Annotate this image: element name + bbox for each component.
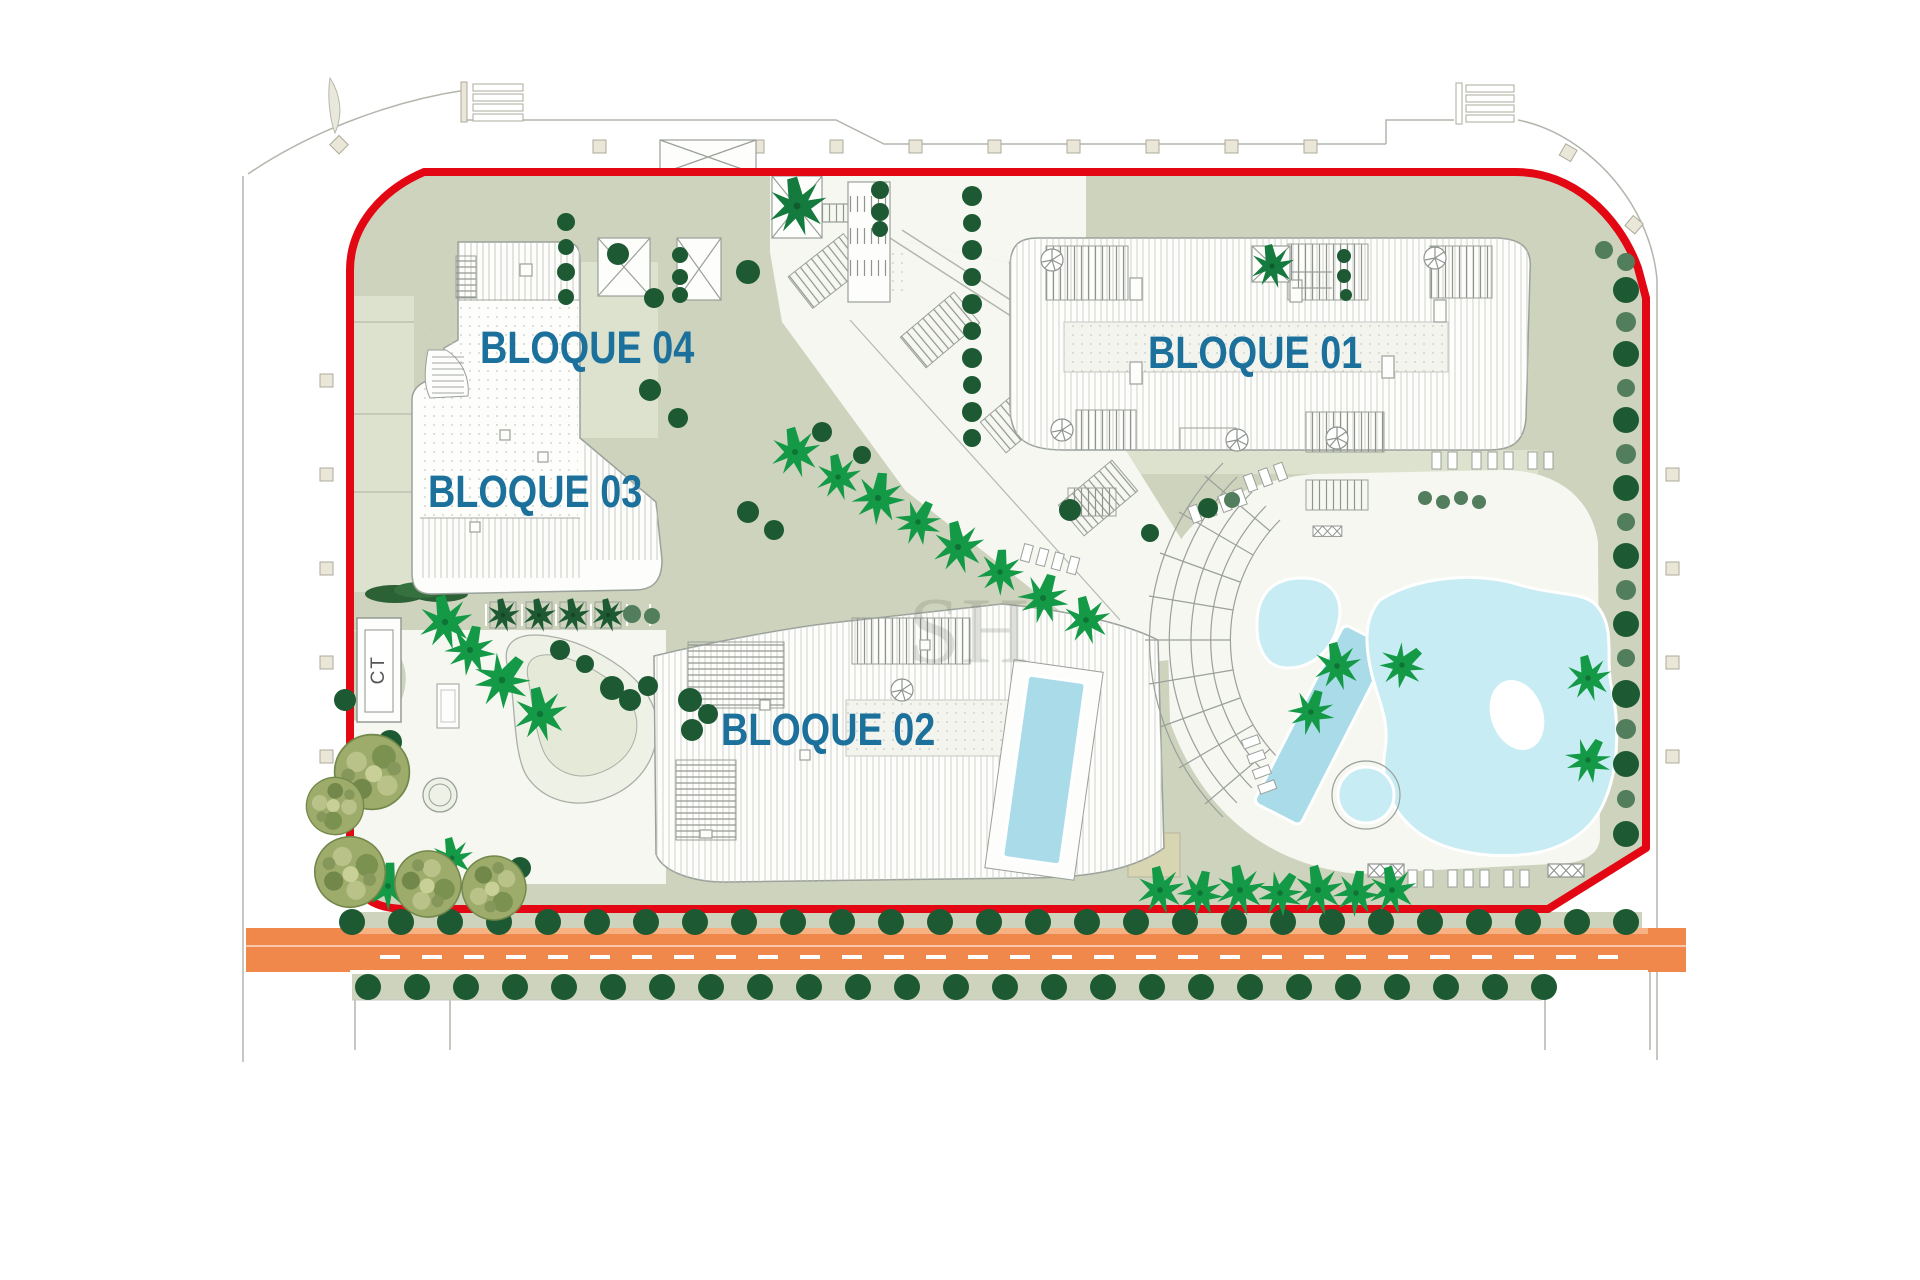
crosswalk-right-icon (1456, 83, 1514, 124)
block-label-bloque-04: BLOQUE 04 (480, 325, 694, 370)
site-plan: BLOQUE 01 BLOQUE 02 BLOQUE 03 BLOQUE 04 … (0, 0, 1920, 1280)
fence-icon (1548, 864, 1584, 877)
crosswalk-left-icon (461, 82, 523, 122)
block-label-bloque-03: BLOQUE 03 (428, 469, 642, 514)
block-label-bloque-01: BLOQUE 01 (1148, 330, 1362, 375)
block-label-bloque-02: BLOQUE 02 (721, 707, 935, 752)
fence-icon (1313, 526, 1342, 536)
transformer-label-box: CT (357, 618, 401, 722)
watermark: SH (908, 584, 1030, 678)
boardwalk (1306, 480, 1368, 510)
transformer-label: CT (368, 655, 390, 684)
spa-pool (1338, 767, 1394, 823)
fountain (423, 778, 457, 812)
